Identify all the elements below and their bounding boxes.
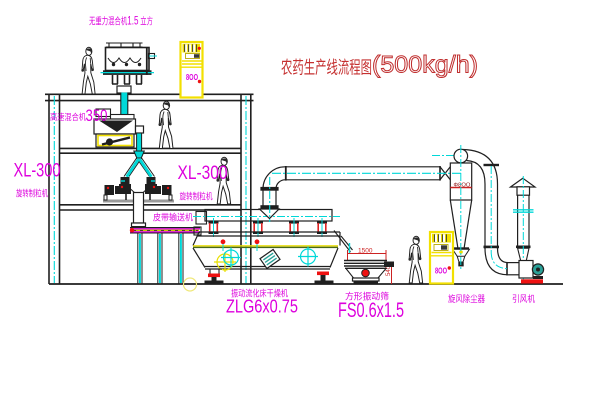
svg-text:高速混合机: 高速混合机 <box>50 112 86 122</box>
svg-text:旋转制粒机: 旋转制粒机 <box>16 188 48 199</box>
svg-text:ZLG6x0.75: ZLG6x0.75 <box>226 296 298 317</box>
svg-text:XL-300: XL-300 <box>178 163 228 184</box>
svg-text:1500: 1500 <box>358 248 373 255</box>
svg-text:旋转制粒机: 旋转制粒机 <box>180 191 213 202</box>
svg-text:XL-300: XL-300 <box>14 160 61 182</box>
svg-text:无重力混合机1.5 立方: 无重力混合机1.5 立方 <box>89 14 153 28</box>
svg-text:8OO: 8OO <box>186 72 198 82</box>
svg-text:旋风除尘器: 旋风除尘器 <box>448 293 485 304</box>
svg-text:8OO: 8OO <box>435 266 447 276</box>
svg-text:引风机: 引风机 <box>512 293 535 304</box>
svg-text:农药生产线流程图: 农药生产线流程图 <box>281 58 372 78</box>
svg-text:(500kg/h): (500kg/h) <box>372 52 478 79</box>
svg-text:350: 350 <box>86 106 108 125</box>
svg-text:皮带输送机: 皮带输送机 <box>153 212 193 223</box>
svg-text:FS0.6x1.5: FS0.6x1.5 <box>338 299 404 322</box>
svg-text:Φ8OO: Φ8OO <box>454 182 471 188</box>
